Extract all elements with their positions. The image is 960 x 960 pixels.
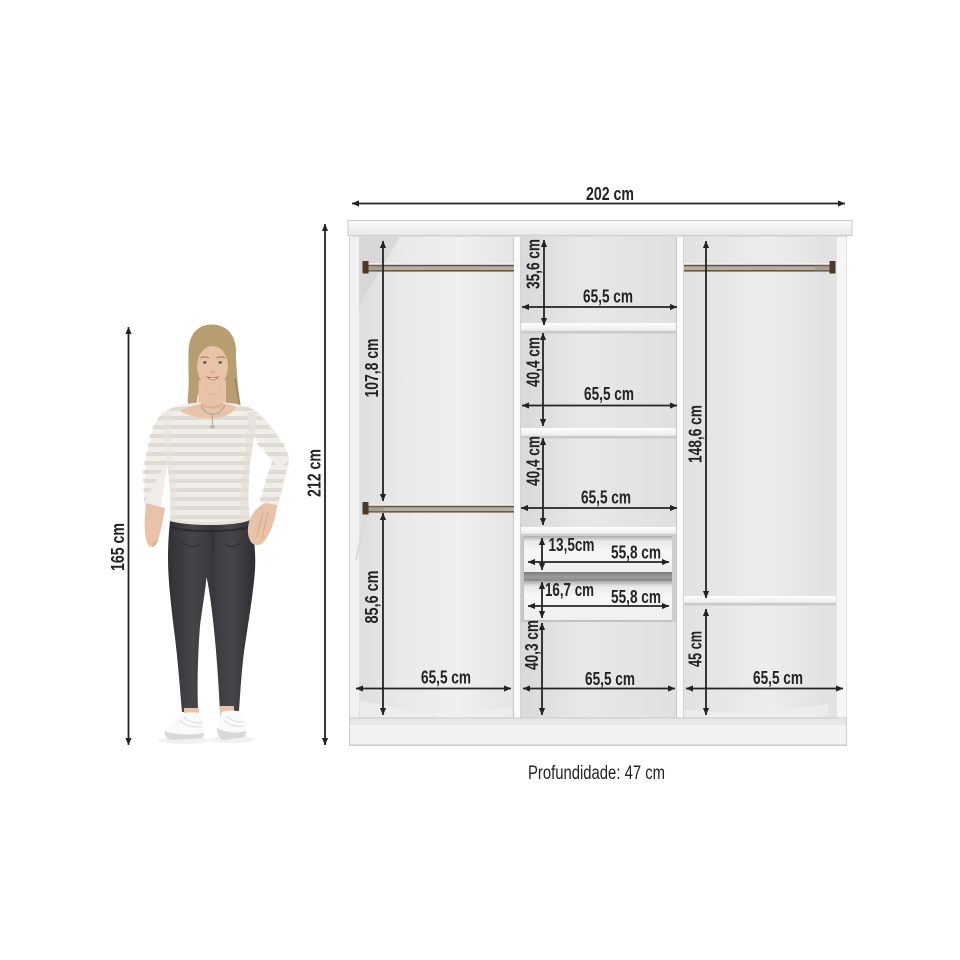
svg-text:65,5 cm: 65,5 cm <box>585 669 635 689</box>
svg-text:55,8 cm: 55,8 cm <box>611 587 661 607</box>
svg-text:65,5 cm: 65,5 cm <box>583 287 633 307</box>
svg-text:35,6 cm: 35,6 cm <box>524 239 544 289</box>
svg-text:202 cm: 202 cm <box>586 184 634 204</box>
svg-text:16,7 cm: 16,7 cm <box>545 580 594 600</box>
svg-text:55,8 cm: 55,8 cm <box>611 543 661 563</box>
svg-text:212 cm: 212 cm <box>305 449 325 497</box>
svg-text:13,5cm: 13,5cm <box>549 535 595 555</box>
svg-text:40,4 cm: 40,4 cm <box>524 436 544 486</box>
svg-text:107,8 cm: 107,8 cm <box>362 339 382 398</box>
svg-text:40,4 cm: 40,4 cm <box>524 337 544 387</box>
svg-text:65,5 cm: 65,5 cm <box>581 488 631 508</box>
svg-text:40,3 cm: 40,3 cm <box>522 620 542 670</box>
svg-text:65,5 cm: 65,5 cm <box>753 668 803 688</box>
svg-text:65,5 cm: 65,5 cm <box>584 384 634 404</box>
svg-text:Profundidade: 47 cm: Profundidade: 47 cm <box>528 763 665 784</box>
svg-text:165 cm: 165 cm <box>108 523 128 571</box>
svg-text:65,5 cm: 65,5 cm <box>421 668 471 688</box>
svg-text:85,6 cm: 85,6 cm <box>362 571 382 624</box>
svg-text:45 cm: 45 cm <box>686 631 706 667</box>
svg-text:148,6 cm: 148,6 cm <box>686 405 706 463</box>
